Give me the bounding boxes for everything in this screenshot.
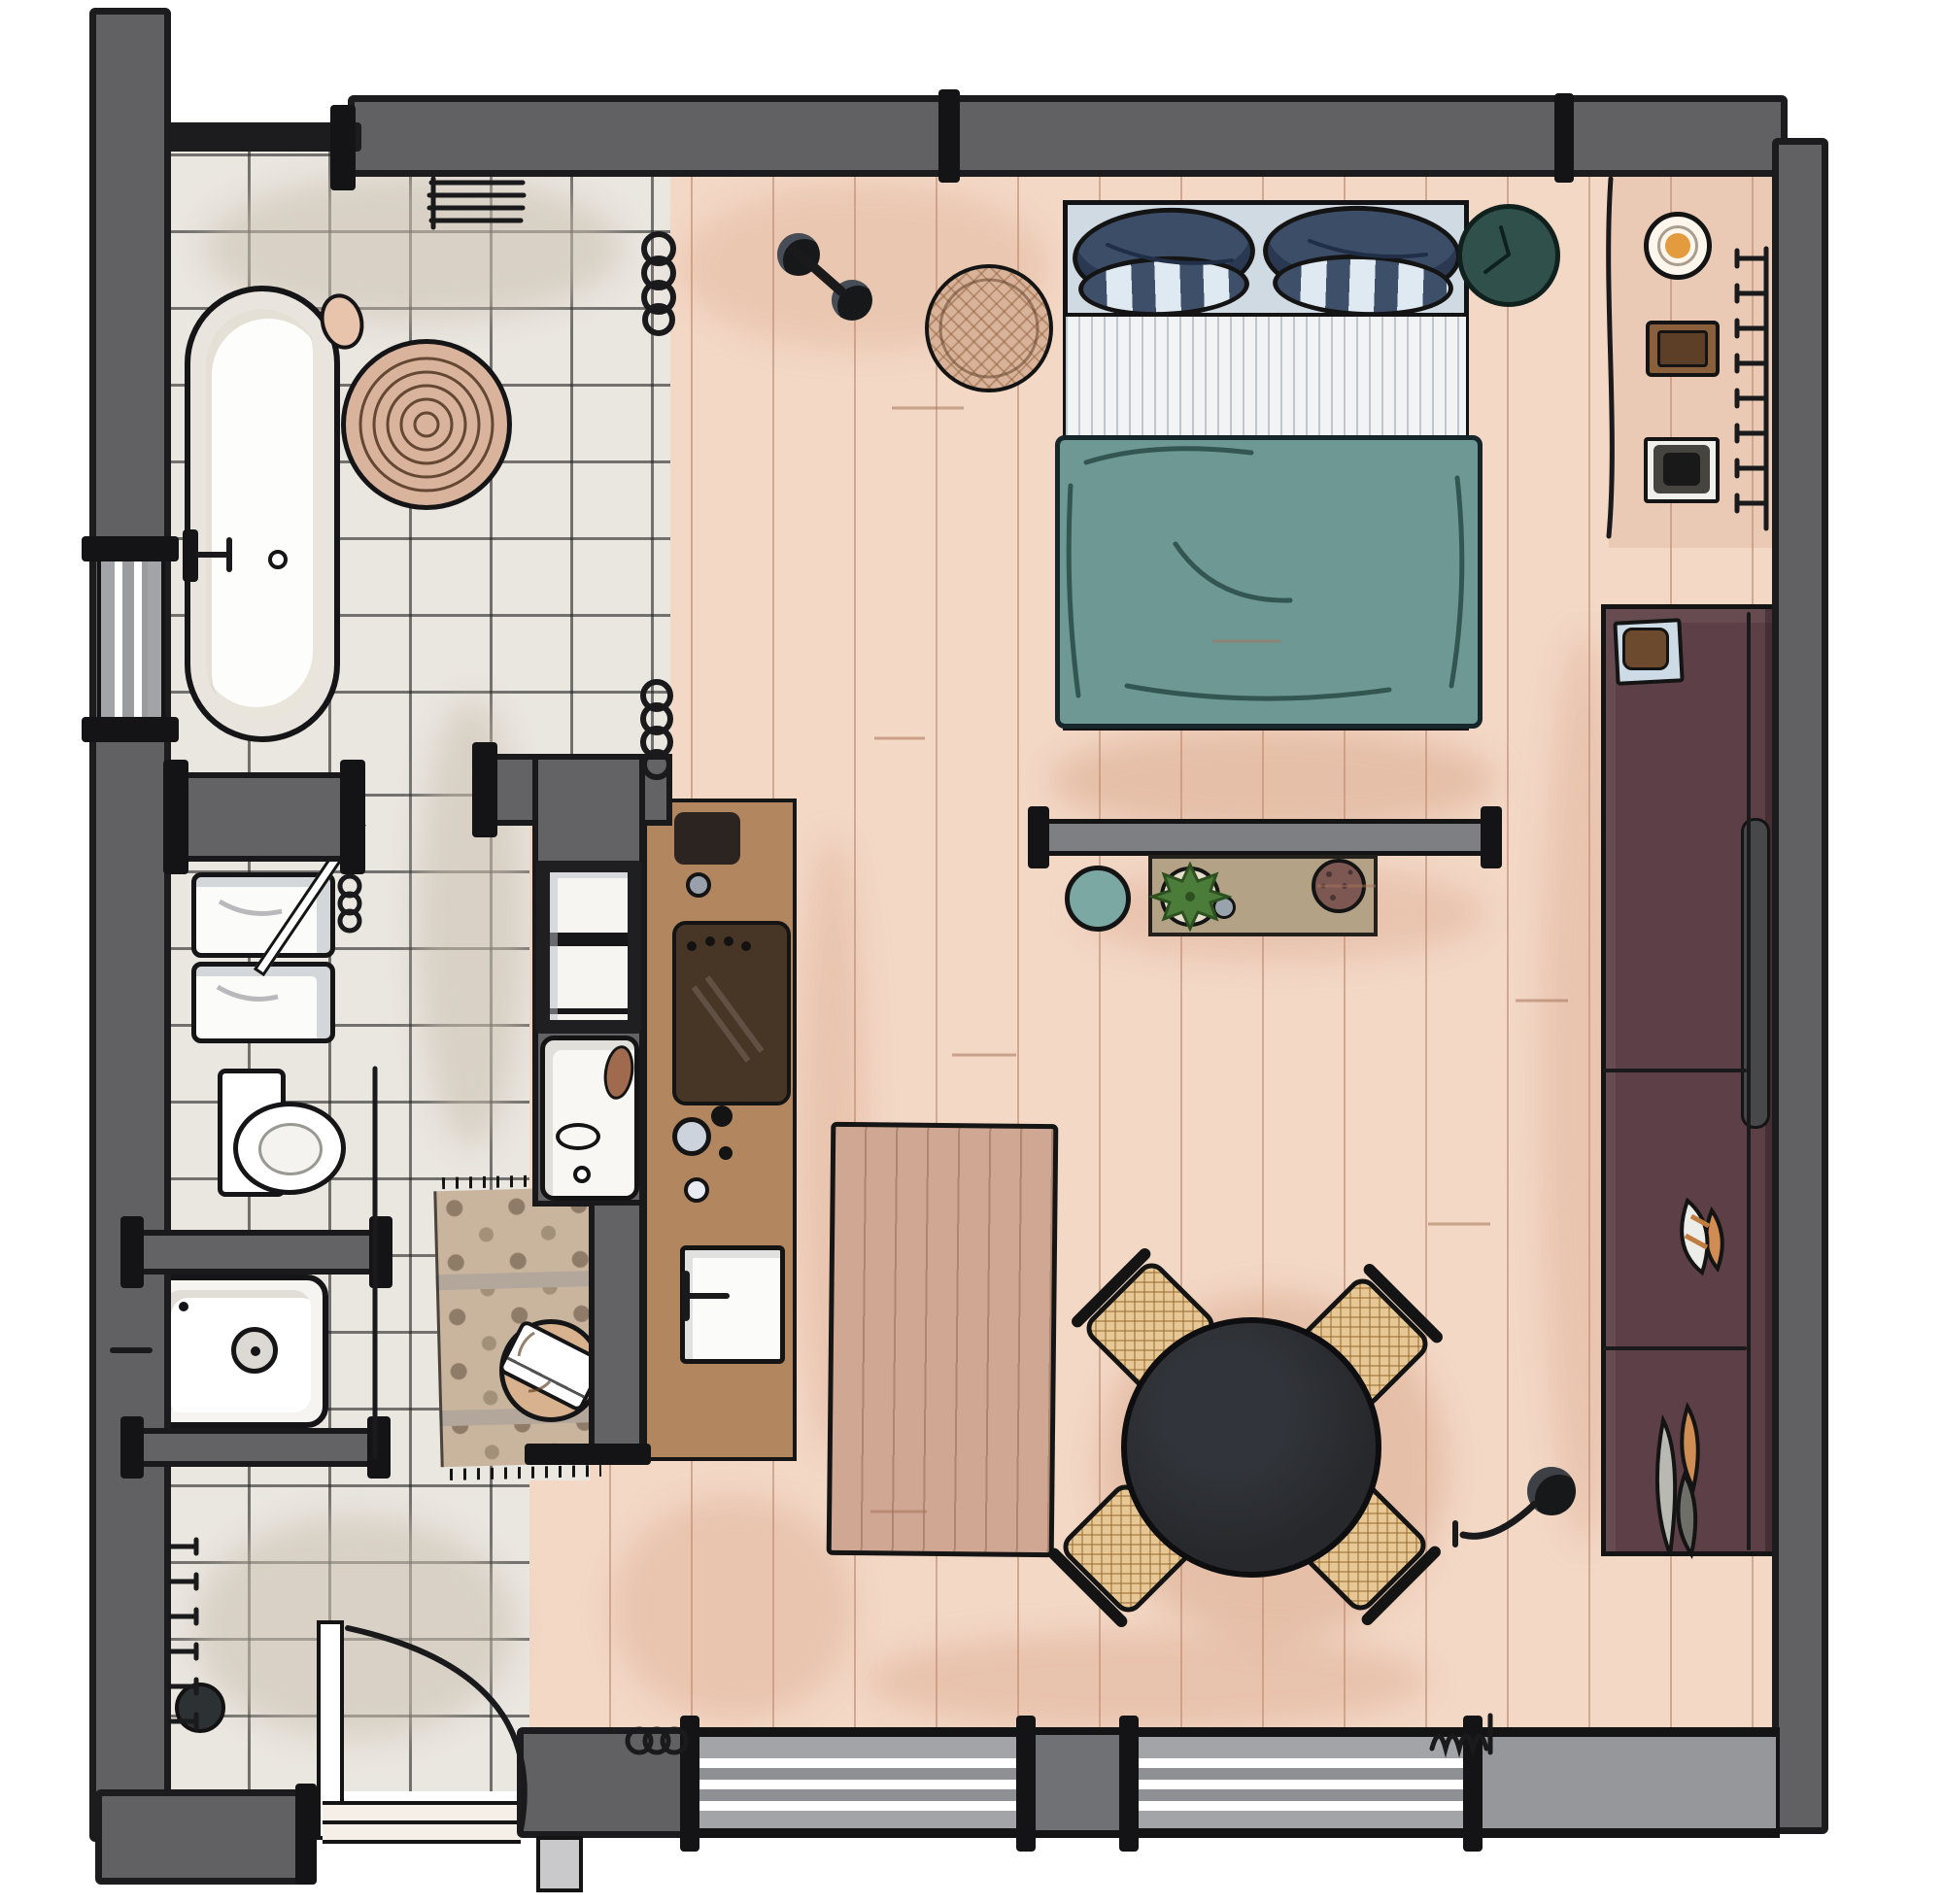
sofa-leaf-pillows xyxy=(1657,1201,1722,1554)
appliance-streaks xyxy=(218,901,282,999)
radiator-right xyxy=(1737,249,1766,528)
towel-radiator xyxy=(429,179,524,227)
radiator-entry xyxy=(169,1540,196,1728)
basket-weave xyxy=(519,1333,550,1391)
stool-marks xyxy=(1485,227,1509,272)
cooktop-knobs xyxy=(687,936,751,951)
floor-plan xyxy=(0,0,1943,1904)
spiral-rings xyxy=(360,358,493,491)
squiggle-icon xyxy=(1432,1736,1486,1749)
door-arc xyxy=(348,1628,525,1830)
duvet-sketch xyxy=(1069,449,1462,698)
sketch-overlay xyxy=(0,0,1943,1904)
lamp-bar xyxy=(793,249,841,291)
rattan-ring xyxy=(940,280,1038,377)
lamp-stem xyxy=(1463,1504,1535,1536)
pillow-sketch xyxy=(1108,241,1426,263)
cooktop-streaks xyxy=(694,977,762,1061)
